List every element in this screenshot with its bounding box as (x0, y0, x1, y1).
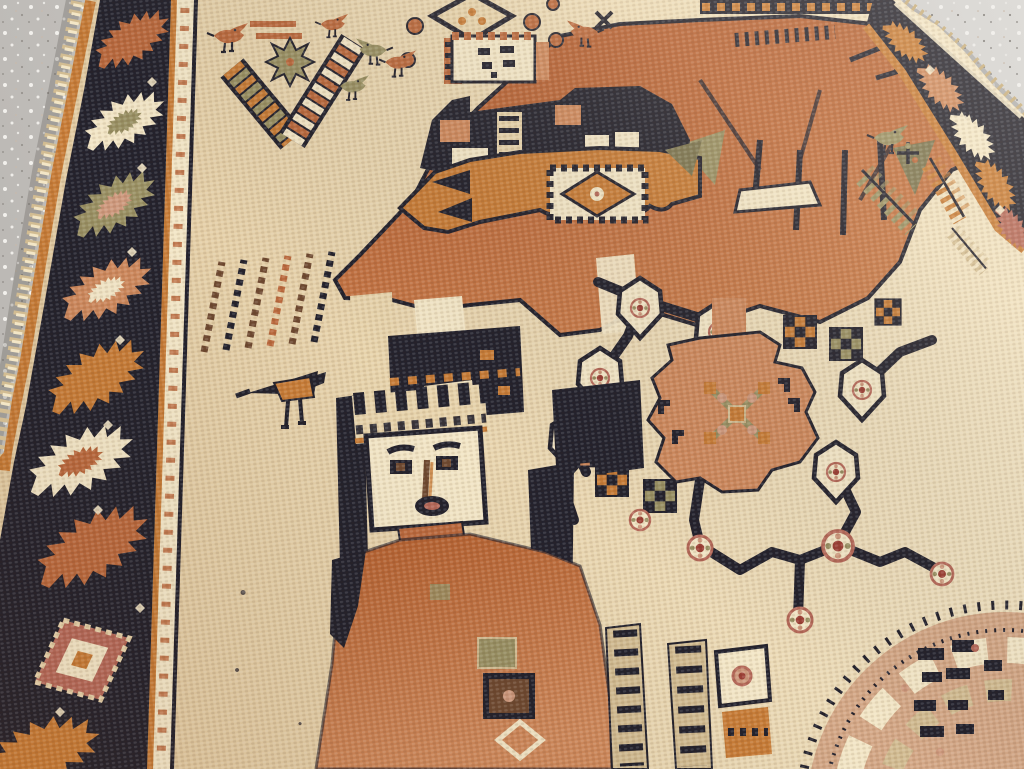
photo-stage (0, 0, 1024, 769)
rug (0, 0, 1024, 769)
rug-photo (0, 0, 1024, 769)
lighting-overlay (0, 0, 1024, 769)
